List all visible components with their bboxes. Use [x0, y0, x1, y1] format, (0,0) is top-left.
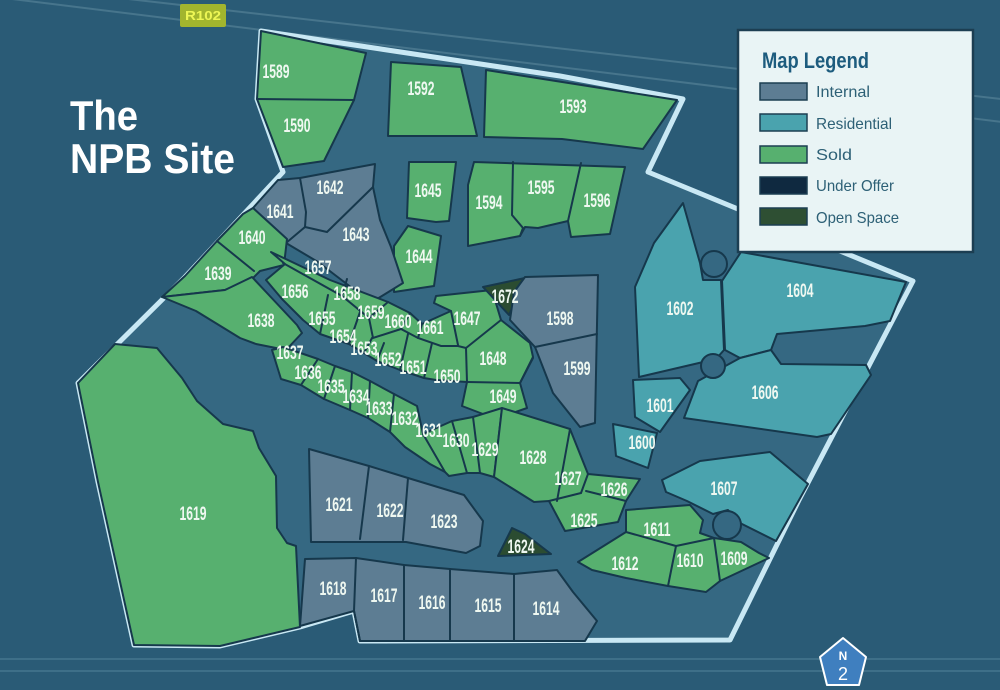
svg-text:NPB Site: NPB Site — [70, 135, 235, 182]
svg-text:1621: 1621 — [326, 495, 353, 516]
svg-text:1589: 1589 — [263, 62, 290, 83]
svg-text:1641: 1641 — [267, 202, 294, 223]
svg-text:1672: 1672 — [492, 287, 519, 308]
svg-text:1650: 1650 — [434, 367, 461, 388]
svg-text:1649: 1649 — [490, 387, 517, 408]
svg-text:1639: 1639 — [205, 264, 232, 285]
svg-text:R102: R102 — [185, 8, 221, 23]
svg-text:1647: 1647 — [454, 309, 481, 330]
svg-text:1615: 1615 — [475, 596, 502, 617]
svg-text:1595: 1595 — [528, 178, 555, 199]
svg-text:1632: 1632 — [392, 409, 419, 430]
svg-text:1598: 1598 — [547, 309, 574, 330]
svg-text:Residential: Residential — [816, 116, 892, 133]
svg-text:1624: 1624 — [508, 537, 535, 558]
svg-text:Map Legend: Map Legend — [762, 48, 869, 73]
svg-text:1602: 1602 — [667, 299, 694, 320]
svg-text:1653: 1653 — [351, 339, 378, 360]
svg-text:1642: 1642 — [317, 178, 344, 199]
svg-text:1599: 1599 — [564, 359, 591, 380]
svg-text:1644: 1644 — [406, 247, 433, 268]
svg-text:1658: 1658 — [334, 284, 361, 305]
svg-text:1594: 1594 — [476, 193, 503, 214]
svg-text:1626: 1626 — [601, 480, 628, 501]
svg-text:1604: 1604 — [787, 281, 814, 302]
svg-text:1630: 1630 — [443, 431, 470, 452]
svg-text:1625: 1625 — [571, 511, 598, 532]
svg-text:1635: 1635 — [318, 377, 345, 398]
svg-text:1637: 1637 — [277, 343, 304, 364]
svg-text:Open Space: Open Space — [816, 210, 899, 227]
svg-text:1601: 1601 — [647, 396, 674, 417]
svg-text:1619: 1619 — [180, 504, 207, 525]
svg-text:1633: 1633 — [366, 399, 393, 420]
svg-text:Internal: Internal — [816, 84, 870, 101]
svg-text:1651: 1651 — [400, 358, 427, 379]
svg-text:1606: 1606 — [752, 383, 779, 404]
svg-text:1660: 1660 — [385, 312, 412, 333]
svg-text:1648: 1648 — [480, 349, 507, 370]
svg-text:1628: 1628 — [520, 448, 547, 469]
svg-text:1596: 1596 — [584, 191, 611, 212]
svg-text:Under Offer: Under Offer — [816, 178, 895, 195]
svg-text:1661: 1661 — [417, 318, 444, 339]
svg-text:1645: 1645 — [415, 181, 442, 202]
svg-text:1593: 1593 — [560, 97, 587, 118]
svg-text:1659: 1659 — [358, 303, 385, 324]
svg-text:1618: 1618 — [320, 579, 347, 600]
svg-text:1600: 1600 — [629, 433, 656, 454]
svg-text:1607: 1607 — [711, 479, 738, 500]
svg-text:1643: 1643 — [343, 225, 370, 246]
svg-text:1592: 1592 — [408, 79, 435, 100]
svg-text:1610: 1610 — [677, 551, 704, 572]
svg-text:1629: 1629 — [472, 440, 499, 461]
svg-text:1638: 1638 — [248, 311, 275, 332]
svg-text:1616: 1616 — [419, 593, 446, 614]
svg-text:1612: 1612 — [612, 554, 639, 575]
svg-text:1611: 1611 — [644, 520, 671, 541]
svg-text:1590: 1590 — [284, 116, 311, 137]
svg-text:2: 2 — [838, 664, 848, 684]
svg-text:1627: 1627 — [555, 469, 582, 490]
svg-text:1614: 1614 — [533, 599, 560, 620]
svg-text:1617: 1617 — [371, 586, 398, 607]
svg-text:Sold: Sold — [816, 147, 852, 164]
svg-text:The: The — [70, 92, 138, 139]
svg-text:1609: 1609 — [721, 549, 748, 570]
svg-text:1657: 1657 — [305, 258, 332, 279]
svg-text:1622: 1622 — [377, 501, 404, 522]
svg-text:1631: 1631 — [416, 421, 443, 442]
svg-text:1656: 1656 — [282, 282, 309, 303]
svg-text:1652: 1652 — [375, 350, 402, 371]
svg-text:1623: 1623 — [431, 512, 458, 533]
svg-text:N: N — [839, 649, 848, 663]
svg-text:1640: 1640 — [239, 228, 266, 249]
